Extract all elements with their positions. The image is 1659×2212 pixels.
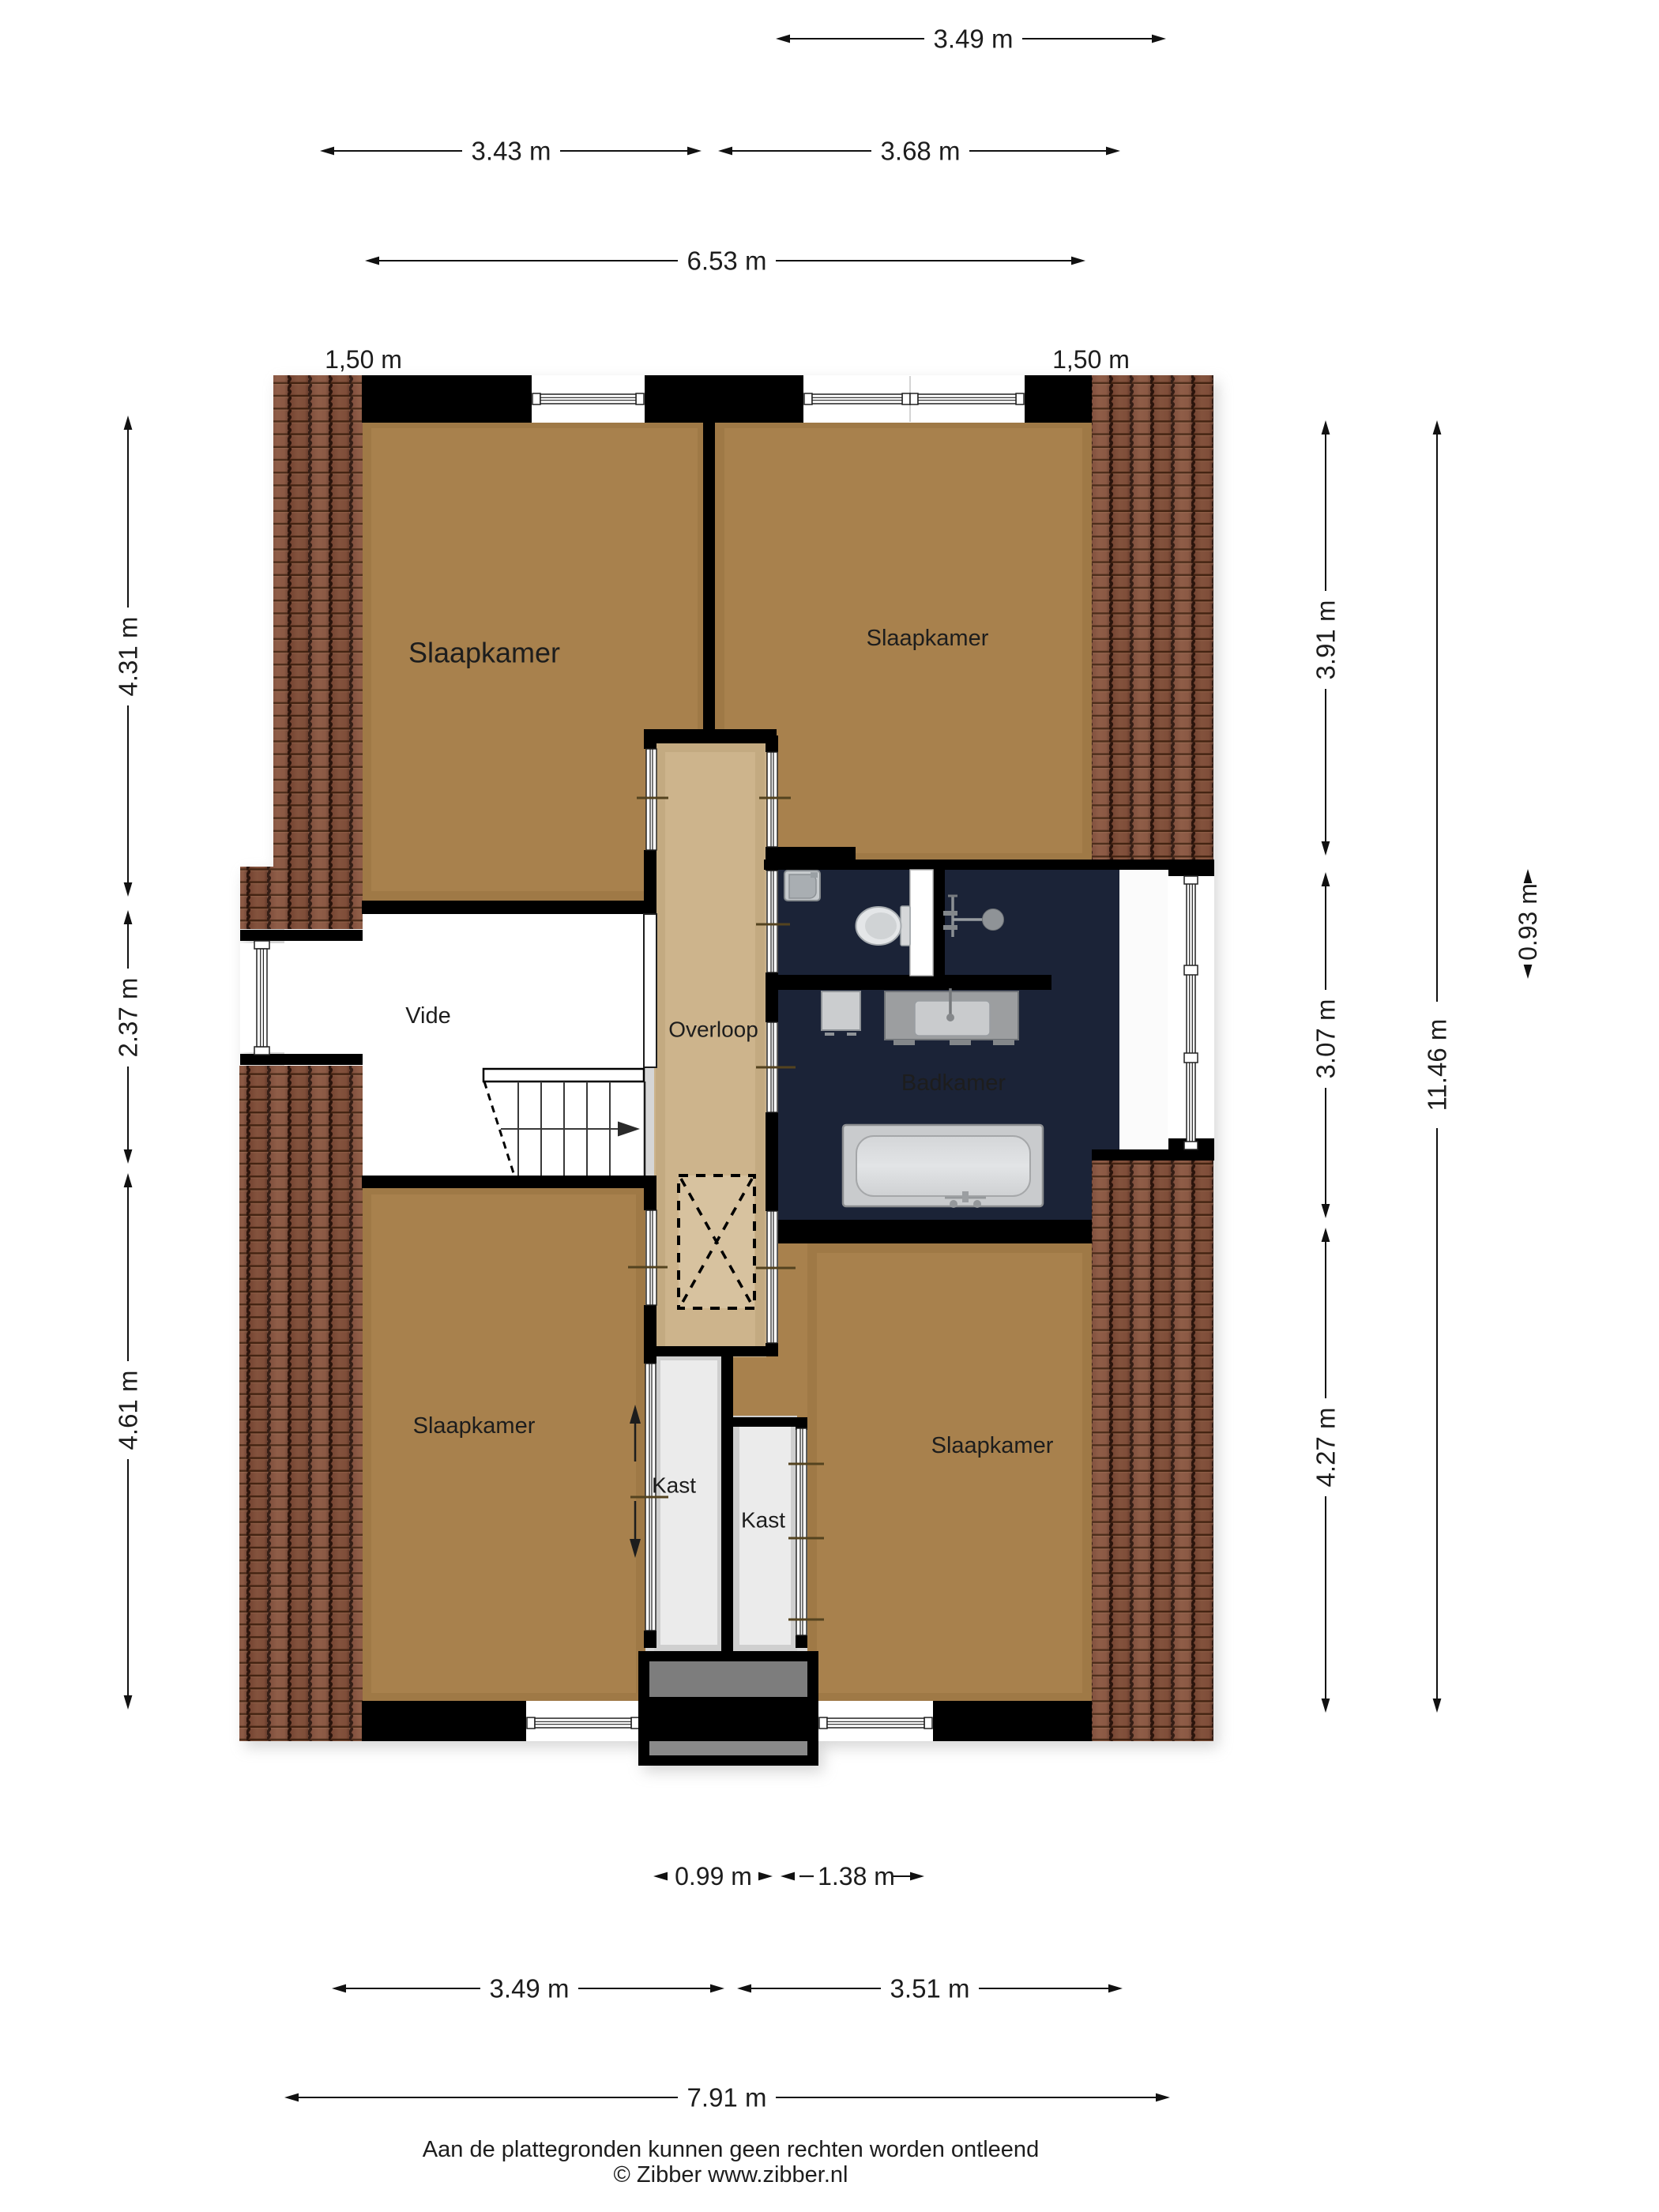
svg-text:3.49 m: 3.49 m bbox=[934, 24, 1014, 54]
svg-text:3.68 m: 3.68 m bbox=[881, 137, 961, 166]
svg-text:1,50 m: 1,50 m bbox=[325, 345, 402, 374]
svg-text:3.91 m: 3.91 m bbox=[1311, 600, 1341, 680]
svg-text:Kast: Kast bbox=[741, 1508, 785, 1533]
svg-text:4.27 m: 4.27 m bbox=[1311, 1408, 1341, 1488]
svg-text:1,50 m: 1,50 m bbox=[1052, 345, 1130, 374]
svg-text:Slaapkamer: Slaapkamer bbox=[408, 637, 560, 669]
svg-text:1.38 m: 1.38 m bbox=[818, 1862, 895, 1890]
svg-text:0.99 m: 0.99 m bbox=[675, 1862, 752, 1890]
svg-text:Slaapkamer: Slaapkamer bbox=[413, 1413, 536, 1439]
svg-text:Kast: Kast bbox=[652, 1473, 696, 1498]
svg-text:3.07 m: 3.07 m bbox=[1311, 999, 1341, 1079]
svg-text:Slaapkamer: Slaapkamer bbox=[931, 1433, 1054, 1458]
svg-text:4.31 m: 4.31 m bbox=[114, 617, 143, 697]
svg-text:3.51 m: 3.51 m bbox=[890, 1974, 970, 2003]
svg-text:Badkamer: Badkamer bbox=[901, 1070, 1006, 1096]
svg-text:4.61 m: 4.61 m bbox=[114, 1371, 143, 1450]
svg-text:3.43 m: 3.43 m bbox=[472, 137, 551, 166]
svg-text:7.91 m: 7.91 m bbox=[687, 2083, 767, 2112]
svg-text:© Zibber www.zibber.nl: © Zibber www.zibber.nl bbox=[614, 2162, 848, 2188]
svg-text:Vide: Vide bbox=[405, 1003, 451, 1029]
svg-text:0.93 m: 0.93 m bbox=[1514, 883, 1542, 961]
svg-text:Aan de plattegronden kunnen ge: Aan de plattegronden kunnen geen rechten… bbox=[423, 2137, 1039, 2162]
svg-text:11.46 m: 11.46 m bbox=[1423, 1019, 1452, 1112]
svg-text:Slaapkamer: Slaapkamer bbox=[867, 626, 989, 651]
svg-text:Overloop: Overloop bbox=[668, 1018, 758, 1042]
svg-text:3.49 m: 3.49 m bbox=[490, 1974, 570, 2003]
svg-text:6.53 m: 6.53 m bbox=[687, 246, 767, 276]
svg-text:2.37 m: 2.37 m bbox=[114, 978, 143, 1058]
